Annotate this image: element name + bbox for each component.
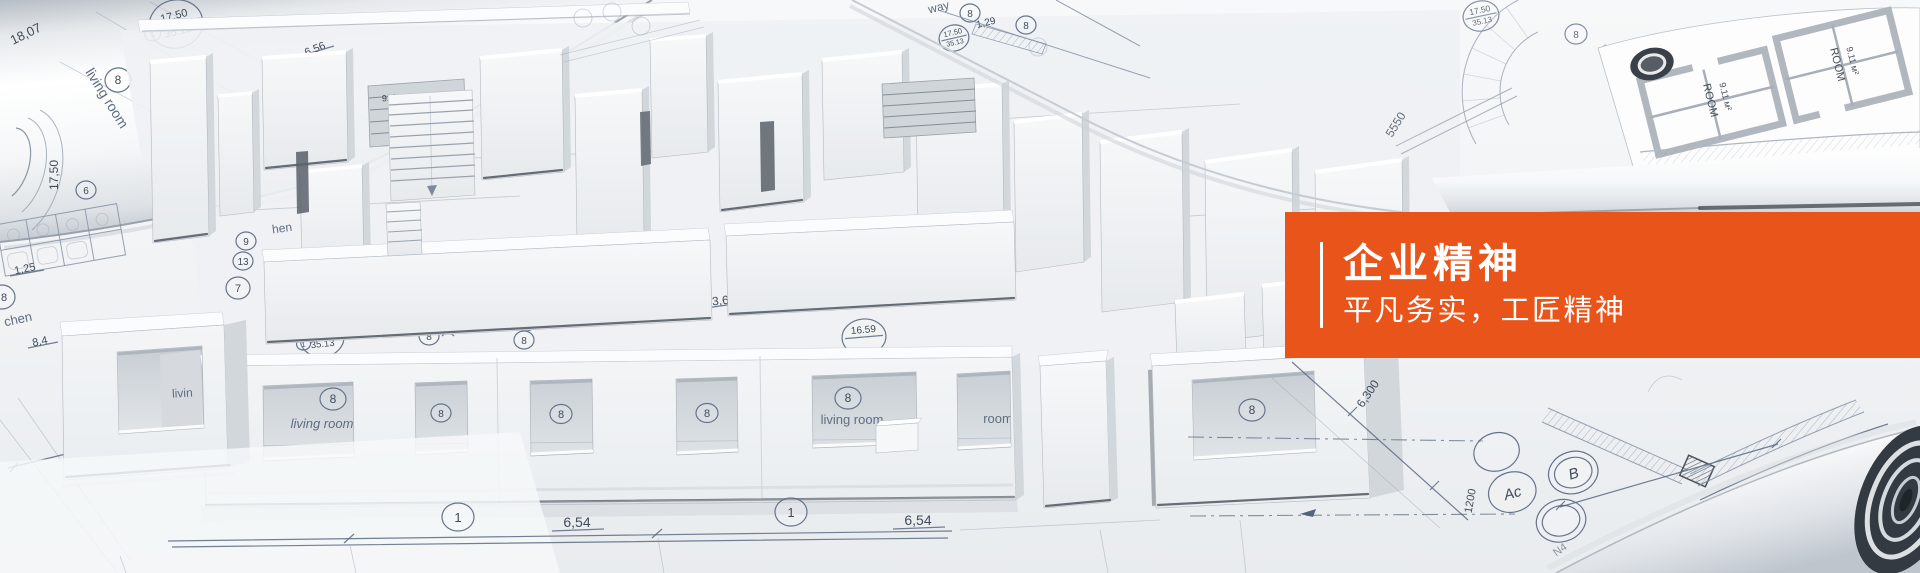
svg-text:living room: living room: [821, 412, 884, 427]
svg-text:8: 8: [1249, 403, 1256, 417]
blueprint-rolls-top-right: ROOM 9.11 м² ROOM 9.11 м²: [1432, 8, 1920, 216]
room-label: way: [926, 0, 951, 17]
svg-text:room: room: [983, 411, 1013, 426]
model-pier: [1038, 350, 1118, 508]
svg-text:1: 1: [787, 505, 794, 520]
svg-text:8: 8: [558, 409, 564, 421]
svg-text:16.59: 16.59: [850, 324, 876, 337]
svg-text:13: 13: [237, 257, 249, 268]
svg-text:8: 8: [1, 292, 7, 304]
svg-text:hen: hen: [271, 220, 293, 237]
svg-text:7: 7: [235, 283, 241, 295]
svg-text:8: 8: [330, 392, 337, 406]
svg-text:livin: livin: [172, 386, 193, 401]
svg-text:8: 8: [704, 408, 710, 420]
svg-text:9: 9: [243, 237, 249, 248]
svg-text:6: 6: [83, 186, 89, 197]
axis-badge: 1: [442, 503, 474, 531]
room-number-badge: 6: [76, 181, 96, 199]
svg-text:8: 8: [115, 73, 122, 87]
architectural-model-3d: hen 9 13 7 6,56 9 8 9 8 3,60 17.50 35.13…: [60, 2, 1460, 521]
glazing-panel: [882, 78, 976, 138]
dim-label: 6,54: [904, 512, 931, 528]
svg-text:1: 1: [454, 510, 461, 525]
svg-text:living room: living room: [291, 416, 354, 431]
dim-label: 6,54: [563, 514, 590, 530]
room-label: chen: [3, 309, 34, 330]
svg-text:8: 8: [438, 409, 444, 420]
room-number-badge: 8: [0, 285, 15, 309]
accent-bar: [1320, 242, 1323, 328]
svg-text:8: 8: [967, 9, 973, 20]
slogan-panel: 企业精神 平凡务实，工匠精神: [1285, 212, 1920, 358]
hero-banner: 18,07 17.50 35.13 1 8 living room 16 17,…: [0, 0, 1920, 573]
svg-text:8: 8: [845, 391, 852, 405]
svg-text:8: 8: [1573, 30, 1579, 41]
axis-badge: 1: [775, 498, 807, 526]
dim-label: 17,50: [47, 160, 61, 190]
slogan-subtitle: 平凡务实，工匠精神: [1343, 297, 1627, 326]
svg-text:8: 8: [521, 336, 527, 347]
svg-text:8: 8: [1023, 21, 1029, 32]
slogan-title: 企业精神: [1343, 244, 1627, 284]
dim-label: 1200: [1463, 488, 1479, 514]
